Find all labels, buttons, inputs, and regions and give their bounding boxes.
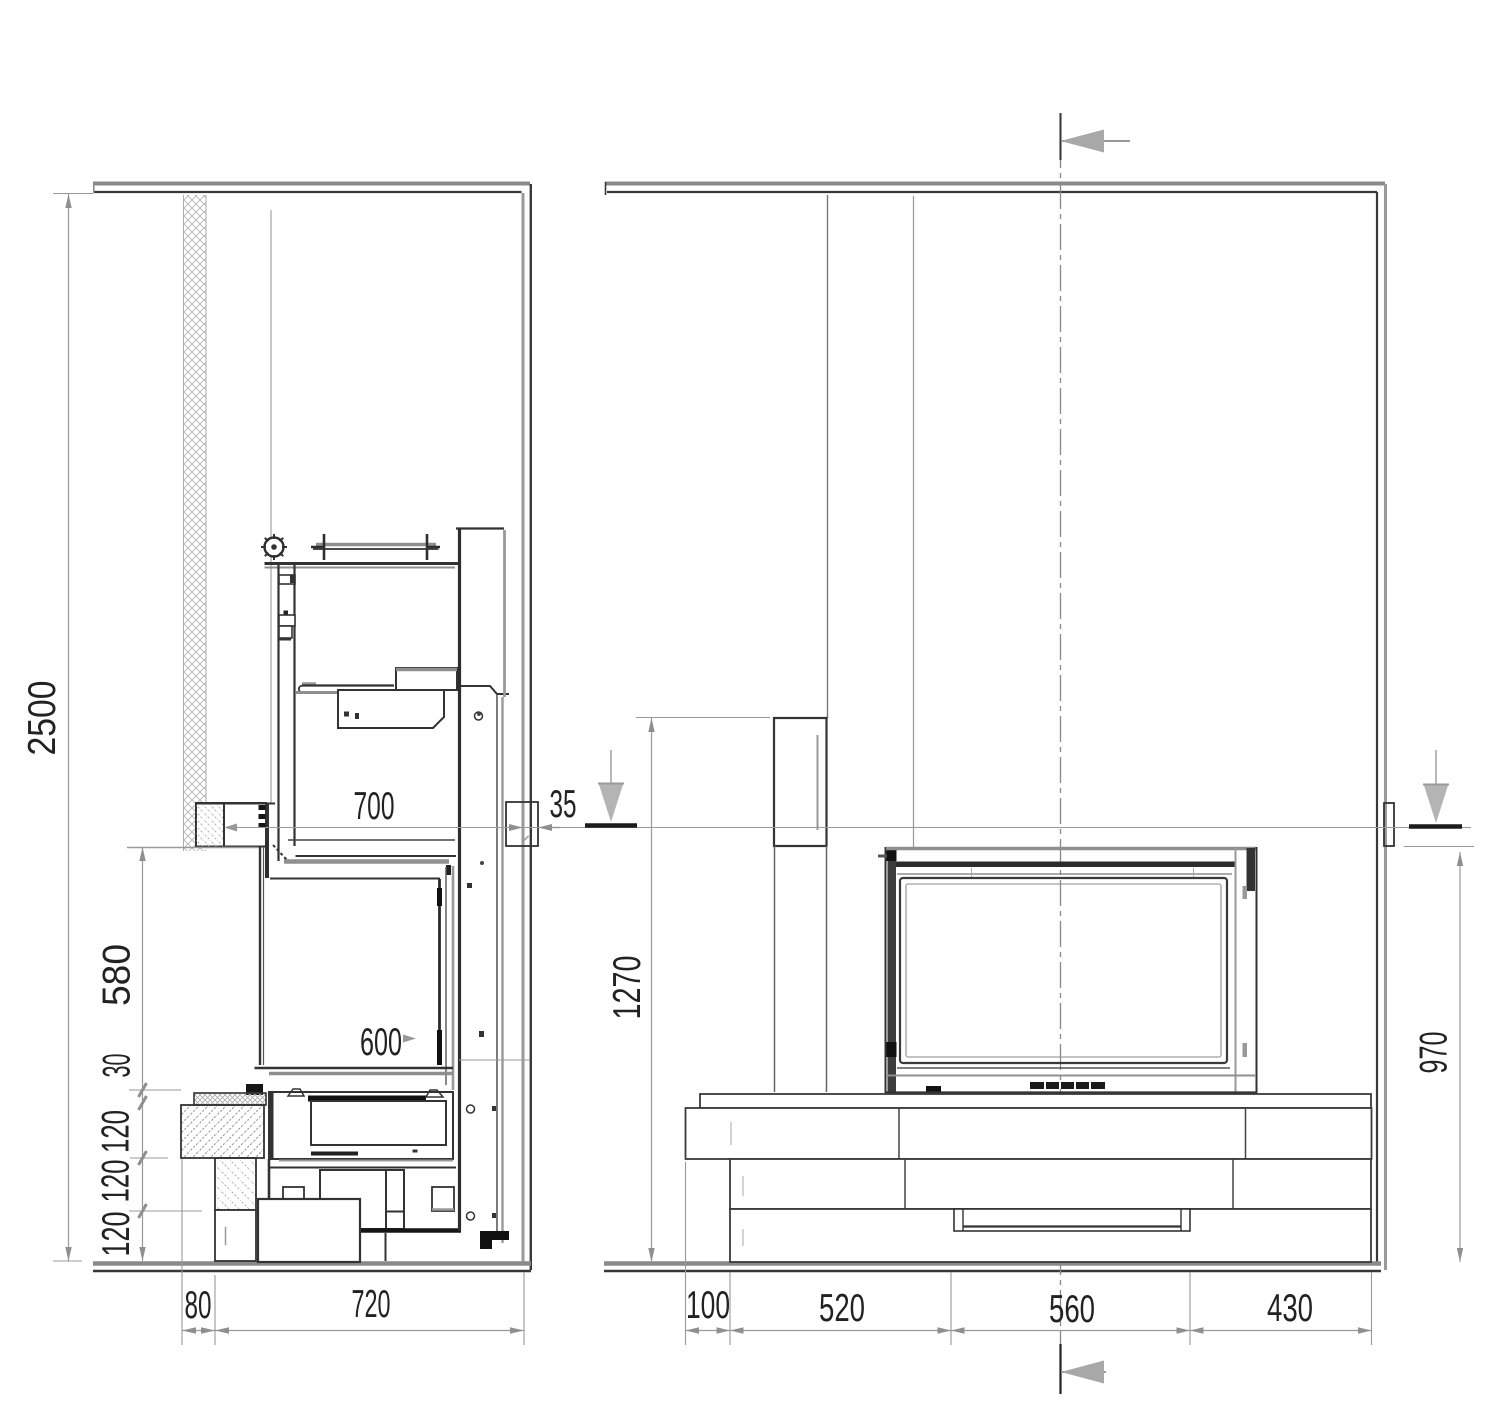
svg-text:720: 720	[352, 1283, 391, 1326]
svg-text:560: 560	[1049, 1288, 1095, 1331]
svg-text:100: 100	[686, 1284, 730, 1327]
svg-text:1270: 1270	[606, 956, 649, 1020]
svg-text:120: 120	[95, 1160, 138, 1203]
svg-text:600: 600	[360, 1021, 402, 1064]
svg-text:35: 35	[550, 783, 577, 826]
svg-text:120: 120	[95, 1212, 138, 1257]
svg-text:2500: 2500	[21, 681, 64, 756]
svg-text:430: 430	[1267, 1287, 1313, 1330]
svg-text:120: 120	[95, 1110, 138, 1153]
svg-text:580: 580	[96, 944, 139, 1006]
svg-text:80: 80	[185, 1284, 212, 1327]
svg-text:30: 30	[96, 1054, 139, 1078]
svg-text:700: 700	[354, 785, 395, 828]
svg-text:970: 970	[1413, 1032, 1456, 1074]
svg-text:520: 520	[819, 1287, 865, 1330]
